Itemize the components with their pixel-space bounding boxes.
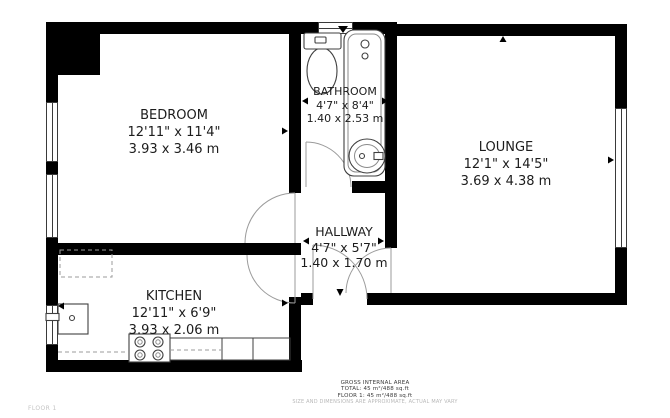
room-name: KITCHEN [58, 288, 290, 305]
kitchen-counter [170, 338, 290, 360]
bathroom-sink-icon [349, 139, 385, 173]
room-dimensions-imperial: 12'1" x 14'5" [396, 156, 616, 173]
floor-label: FLOOR 1 [28, 405, 57, 412]
shower-head-icon [338, 26, 348, 33]
floorplan-symbols [0, 0, 670, 418]
room-dimensions-metric: 1.40 x 2.53 m [297, 112, 393, 126]
room-dimensions-imperial: 4'7" x 5'7" [299, 240, 389, 256]
room-dimensions-metric: 3.93 x 2.06 m [58, 322, 290, 339]
floorplan: BEDROOM 12'11" x 11'4" 3.93 x 3.46 m BAT… [0, 0, 670, 418]
room-name: HALLWAY [299, 224, 389, 240]
room-label-hallway: HALLWAY 4'7" x 5'7" 1.40 x 1.70 m [299, 224, 389, 271]
room-dimensions-metric: 3.93 x 3.46 m [58, 141, 290, 158]
room-name: BEDROOM [58, 107, 290, 124]
room-dimensions-imperial: 12'11" x 6'9" [58, 305, 290, 322]
room-label-bedroom: BEDROOM 12'11" x 11'4" 3.93 x 3.46 m [58, 107, 290, 158]
room-dimensions-imperial: 4'7" x 8'4" [297, 99, 393, 113]
room-dimensions-imperial: 12'11" x 11'4" [58, 124, 290, 141]
room-label-lounge: LOUNGE 12'1" x 14'5" 3.69 x 4.38 m [396, 139, 616, 190]
room-label-kitchen: KITCHEN 12'11" x 6'9" 3.93 x 2.06 m [58, 288, 290, 339]
area-summary: GROSS INTERNAL AREA TOTAL: 45 m²/488 sq.… [255, 380, 495, 405]
room-dimensions-metric: 3.69 x 4.38 m [396, 173, 616, 190]
room-name: BATHROOM [297, 85, 393, 99]
room-label-bathroom: BATHROOM 4'7" x 8'4" 1.40 x 2.53 m [297, 85, 393, 126]
room-name: LOUNGE [396, 139, 616, 156]
area-summary-disclaimer: SIZE AND DIMENSIONS ARE APPROXIMATE, ACT… [255, 399, 495, 406]
room-dimensions-metric: 1.40 x 1.70 m [299, 255, 389, 271]
door-arc-bedroom [245, 193, 295, 243]
